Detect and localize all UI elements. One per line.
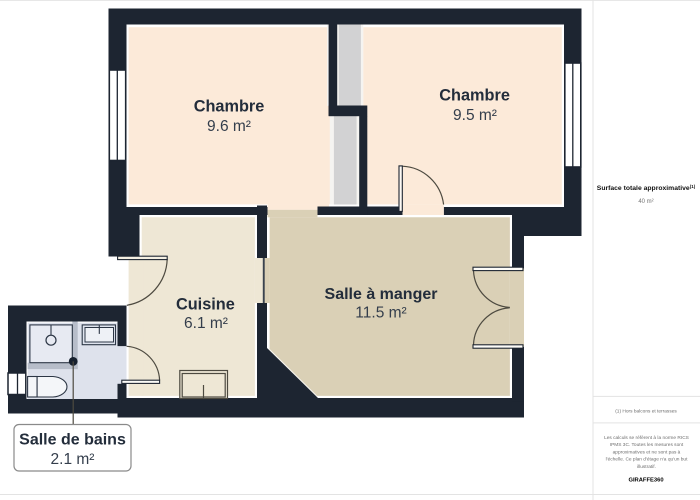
svg-text:GIRAFFE360: GIRAFFE360 — [628, 478, 663, 484]
svg-text:11.5 m²: 11.5 m² — [355, 305, 406, 322]
svg-text:40 m²: 40 m² — [638, 199, 653, 205]
svg-text:l'échelle. Ce plan d'étage n'a: l'échelle. Ce plan d'étage n'a qu'un but — [606, 457, 688, 463]
svg-text:6.1 m²: 6.1 m² — [184, 315, 228, 332]
svg-text:9.5 m²: 9.5 m² — [453, 107, 497, 124]
svg-text:illustratif.: illustratif. — [637, 464, 656, 470]
svg-text:Cuisine: Cuisine — [176, 295, 235, 313]
svg-text:2.1 m²: 2.1 m² — [51, 451, 95, 468]
svg-text:Salle à manger: Salle à manger — [325, 286, 438, 303]
svg-text:IPMS 3C. Toutes les mesures so: IPMS 3C. Toutes les mesures sont — [610, 442, 684, 448]
svg-text:Salle de bains: Salle de bains — [19, 432, 126, 449]
svg-text:9.6 m²: 9.6 m² — [207, 118, 251, 135]
svg-text:Surface totale approximative(1: Surface totale approximative(1) — [597, 184, 696, 192]
svg-text:Chambre: Chambre — [439, 87, 510, 105]
svg-text:(1) Hors balcons et terrasses: (1) Hors balcons et terrasses — [615, 409, 677, 415]
svg-text:Les calculs se réfèrent à la n: Les calculs se réfèrent à la norme RICS — [604, 435, 689, 441]
svg-text:Chambre: Chambre — [194, 98, 265, 116]
svg-text:approximatives et ne sont pas: approximatives et ne sont pas à — [613, 449, 681, 455]
